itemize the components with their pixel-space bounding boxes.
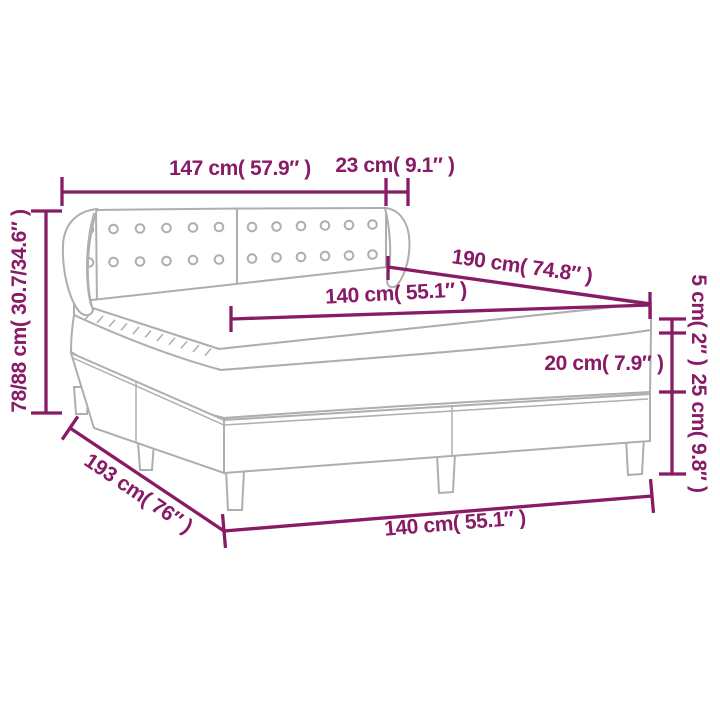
- tufting-button: [162, 224, 171, 233]
- tufting-button: [297, 222, 306, 231]
- dim-label-base-height: 25 cm( 9.8″ ): [686, 373, 710, 492]
- dim-label-headboard-width: 147 cm( 57.9″ ): [169, 157, 311, 181]
- tufting-button: [109, 225, 118, 234]
- tufting-button: [272, 222, 281, 231]
- dim-label-wing-depth: 23 cm( 9.1″ ): [335, 154, 454, 178]
- dim-label-mattress-height: 20 cm( 7.9″ ): [544, 352, 663, 376]
- tufting-button: [136, 257, 145, 266]
- tufting-button: [109, 258, 118, 267]
- tufting-button: [162, 257, 171, 266]
- tufting-button: [368, 250, 377, 259]
- dim-label-topper-height: 5 cm( 2″ ): [686, 274, 710, 365]
- bed-dimension-diagram: 147 cm( 57.9″ ) 23 cm( 9.1″ ) 190 cm( 74…: [0, 0, 720, 720]
- dim-tick: [223, 514, 226, 548]
- tufting-button: [272, 253, 281, 262]
- dim-tick: [651, 479, 654, 513]
- tufting-button: [248, 223, 257, 232]
- dim-tick: [62, 416, 78, 439]
- tufting-button: [368, 220, 377, 229]
- tufting-button: [297, 253, 306, 262]
- tufting-button: [345, 221, 354, 230]
- tufting-button: [215, 255, 224, 264]
- tufting-button: [189, 256, 198, 265]
- page-root: { "diagram": { "type": "product-dimensio…: [0, 0, 720, 720]
- tufting-button: [321, 252, 330, 261]
- bed-leg: [226, 470, 244, 510]
- tufting-button: [345, 251, 354, 260]
- tufting-button: [136, 224, 145, 233]
- bed-leg: [437, 453, 455, 493]
- tufting-button: [189, 223, 198, 232]
- tufting-button: [321, 221, 330, 230]
- tufting-button: [248, 254, 257, 263]
- dim-label-overall-height: 78/88 cm( 30.7/34.6″ ): [8, 209, 32, 412]
- tufting-button: [215, 223, 224, 232]
